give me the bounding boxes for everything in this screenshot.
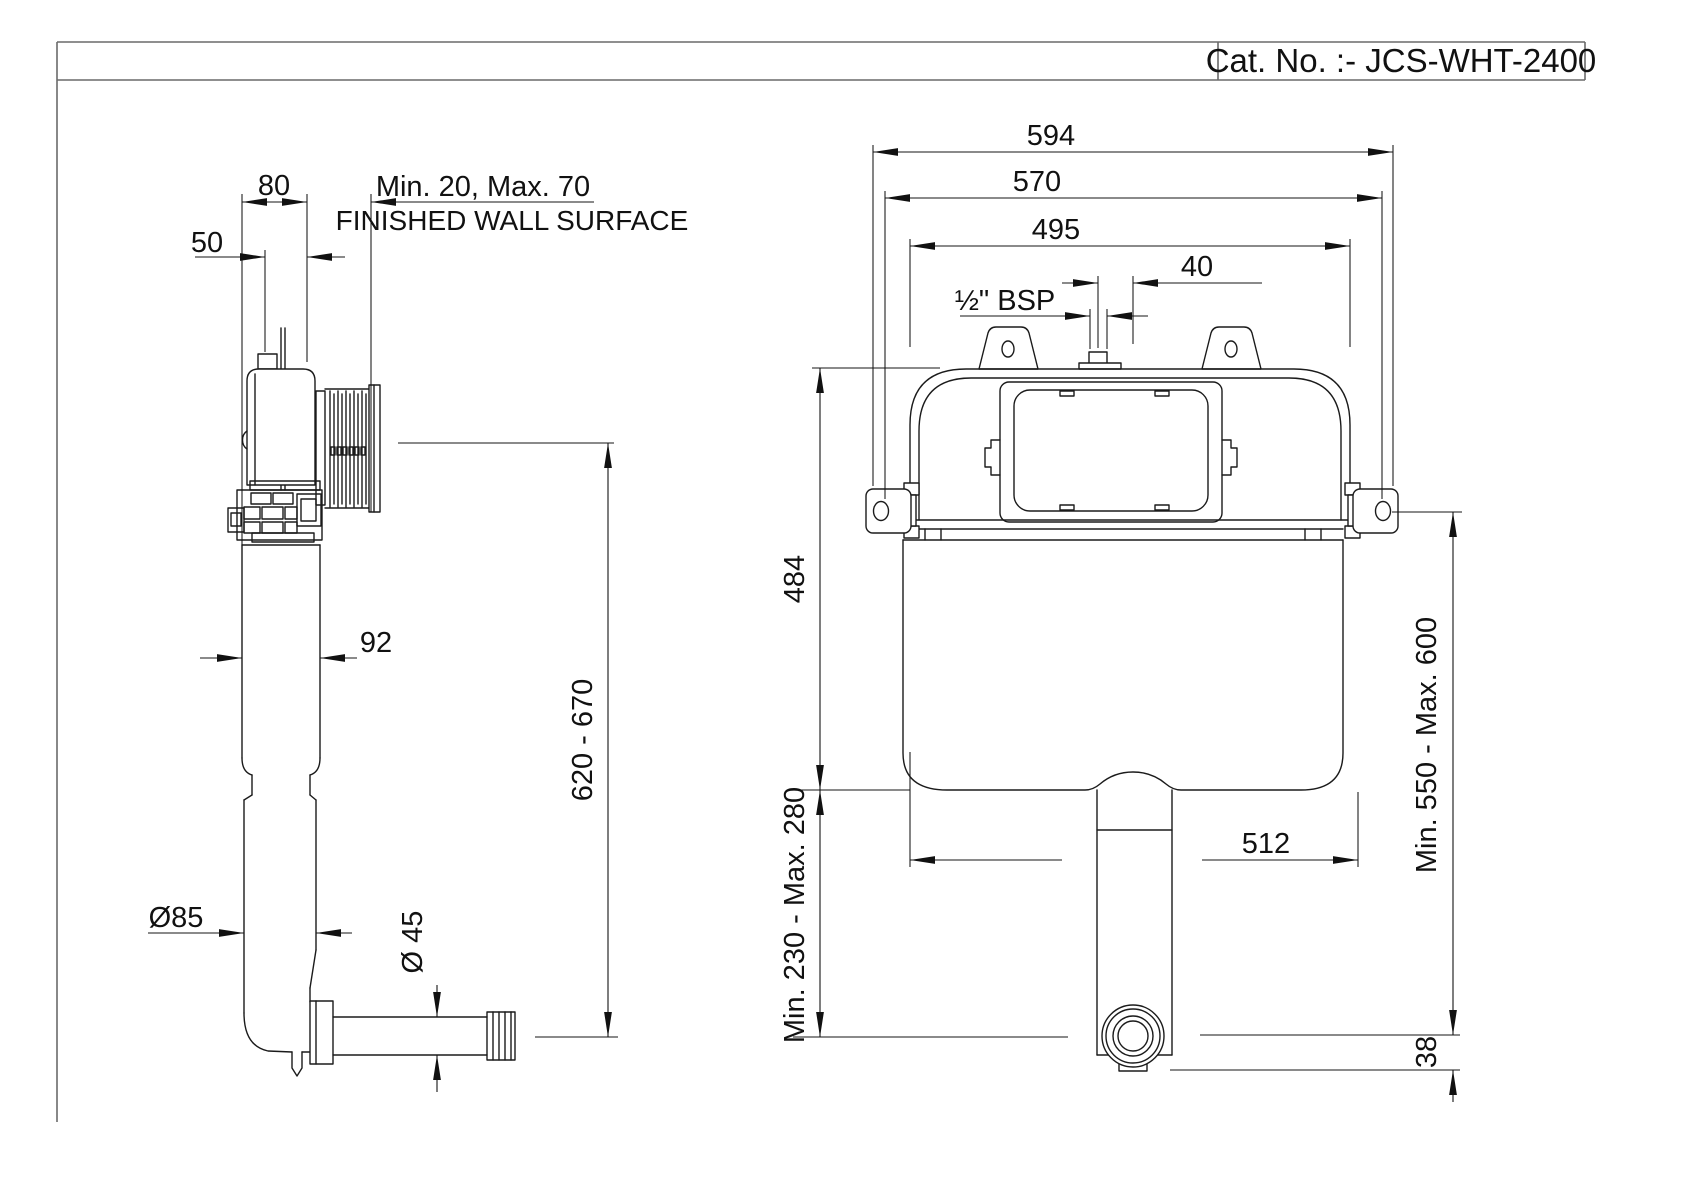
dim-dia45-label: Ø 45: [397, 911, 429, 974]
title-block: Cat. No. :- JCS-WHT-2400: [57, 42, 1596, 1122]
dim-620-670-label: 620 - 670: [567, 679, 599, 802]
wall-surface-label: FINISHED WALL SURFACE: [336, 205, 689, 236]
dim-50-label: 50: [191, 227, 223, 259]
front-view-dimensions: 594 570 495 40 ½" BSP 484 Min. 230 - Max…: [779, 120, 1462, 1102]
inlet-thread-label: ½" BSP: [955, 285, 1056, 317]
wall-range-label: Min. 20, Max. 70: [376, 171, 590, 203]
dim-dia85-label: Ø85: [149, 902, 204, 934]
dim-594-label: 594: [1027, 120, 1075, 152]
dim-570-label: 570: [1013, 166, 1061, 198]
dim-40-label: 40: [1181, 251, 1213, 283]
dim-512-label: 512: [1242, 828, 1290, 860]
drawing-sheet: Cat. No. :- JCS-WHT-2400: [0, 0, 1684, 1190]
dim-550-600-label: Min. 550 - Max. 600: [1411, 617, 1443, 873]
dim-495-label: 495: [1032, 214, 1080, 246]
technical-drawing: Cat. No. :- JCS-WHT-2400: [0, 0, 1684, 1190]
dim-484-label: 484: [779, 555, 811, 603]
dim-92-label: 92: [360, 627, 392, 659]
dim-38-label: 38: [1411, 1036, 1443, 1068]
dim-80-label: 80: [258, 170, 290, 202]
side-view-dimensions: 80 50 Min. 20, Max. 70 FINISHED WALL SUR…: [148, 170, 688, 1092]
catalog-number-label: Cat. No. :- JCS-WHT-2400: [1206, 42, 1597, 79]
front-view-drawing: [866, 327, 1398, 1071]
dim-230-280-label: Min. 230 - Max. 280: [779, 787, 811, 1043]
